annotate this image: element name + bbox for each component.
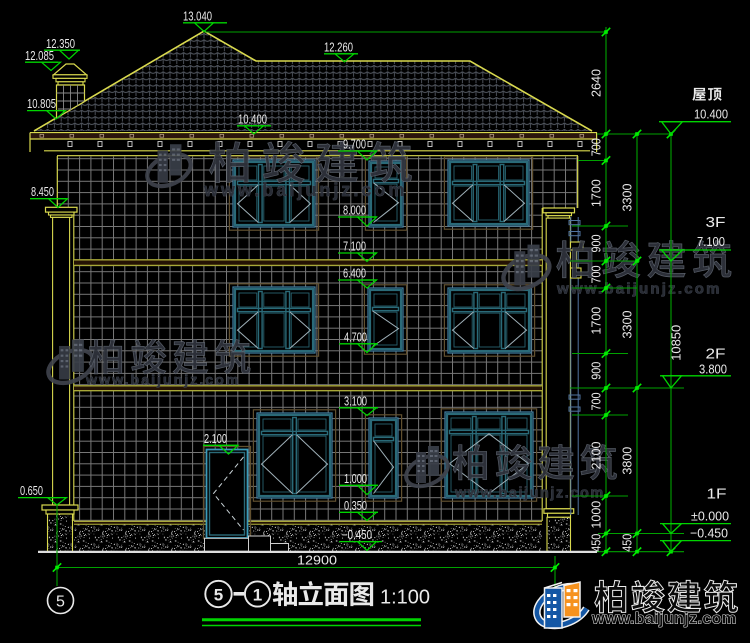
svg-text:8.450: 8.450 [31, 185, 54, 199]
svg-text:1700: 1700 [590, 307, 604, 335]
svg-text:9.700: 9.700 [343, 138, 366, 152]
svg-text:3300: 3300 [621, 183, 635, 211]
svg-text:13.040: 13.040 [183, 10, 212, 24]
svg-text:5: 5 [56, 594, 65, 611]
svg-text:900: 900 [590, 362, 604, 380]
svg-text:www.baijunjz.com: www.baijunjz.com [591, 611, 737, 628]
svg-text:www.baijunjz.com: www.baijunjz.com [454, 486, 605, 502]
svg-text:700: 700 [590, 265, 604, 283]
svg-text:www.baijunjz.com: www.baijunjz.com [556, 281, 722, 298]
svg-text:7.100: 7.100 [697, 234, 725, 249]
svg-text:5: 5 [214, 586, 223, 605]
svg-text:12900: 12900 [297, 554, 337, 568]
svg-text:450: 450 [621, 534, 635, 552]
svg-text:www.baijunjz.com: www.baijunjz.com [203, 180, 407, 200]
svg-text:3800: 3800 [621, 447, 635, 475]
svg-text:700: 700 [590, 138, 604, 156]
svg-text:0.650: 0.650 [20, 484, 43, 498]
svg-text:8.000: 8.000 [343, 204, 366, 218]
svg-text:3300: 3300 [621, 310, 635, 338]
svg-text:1:100: 1:100 [380, 587, 430, 609]
svg-text:4.700: 4.700 [344, 331, 367, 345]
svg-text:2.100: 2.100 [204, 432, 227, 446]
svg-text:10.400: 10.400 [238, 113, 267, 127]
svg-text:1700: 1700 [590, 179, 604, 207]
svg-text:700: 700 [590, 392, 604, 410]
svg-text:2100: 2100 [590, 441, 604, 469]
svg-text:2640: 2640 [590, 69, 604, 97]
svg-text:1: 1 [253, 586, 262, 605]
svg-text:10.400: 10.400 [694, 107, 728, 122]
svg-text:12.085: 12.085 [25, 49, 54, 63]
svg-text:1.000: 1.000 [344, 472, 367, 486]
svg-text:1000: 1000 [590, 501, 604, 529]
svg-text:10.805: 10.805 [27, 97, 56, 111]
svg-text:0.350: 0.350 [344, 499, 367, 513]
svg-text:12.260: 12.260 [324, 41, 353, 55]
svg-text:7.100: 7.100 [343, 240, 366, 254]
svg-text:900: 900 [590, 234, 604, 252]
svg-text:1F: 1F [707, 487, 727, 503]
svg-text:3.100: 3.100 [344, 395, 367, 409]
svg-text:3F: 3F [706, 215, 726, 231]
svg-text:2F: 2F [706, 347, 726, 363]
svg-text:10850: 10850 [670, 325, 684, 361]
svg-text:−0.450: −0.450 [690, 526, 728, 541]
svg-text:−0.450: −0.450 [342, 528, 372, 542]
svg-text:www.baijunjz.com: www.baijunjz.com [85, 373, 240, 389]
svg-text:6.400: 6.400 [343, 267, 366, 281]
svg-text:450: 450 [590, 534, 604, 552]
svg-text:3.800: 3.800 [699, 362, 727, 377]
svg-text:±0.000: ±0.000 [691, 509, 729, 524]
